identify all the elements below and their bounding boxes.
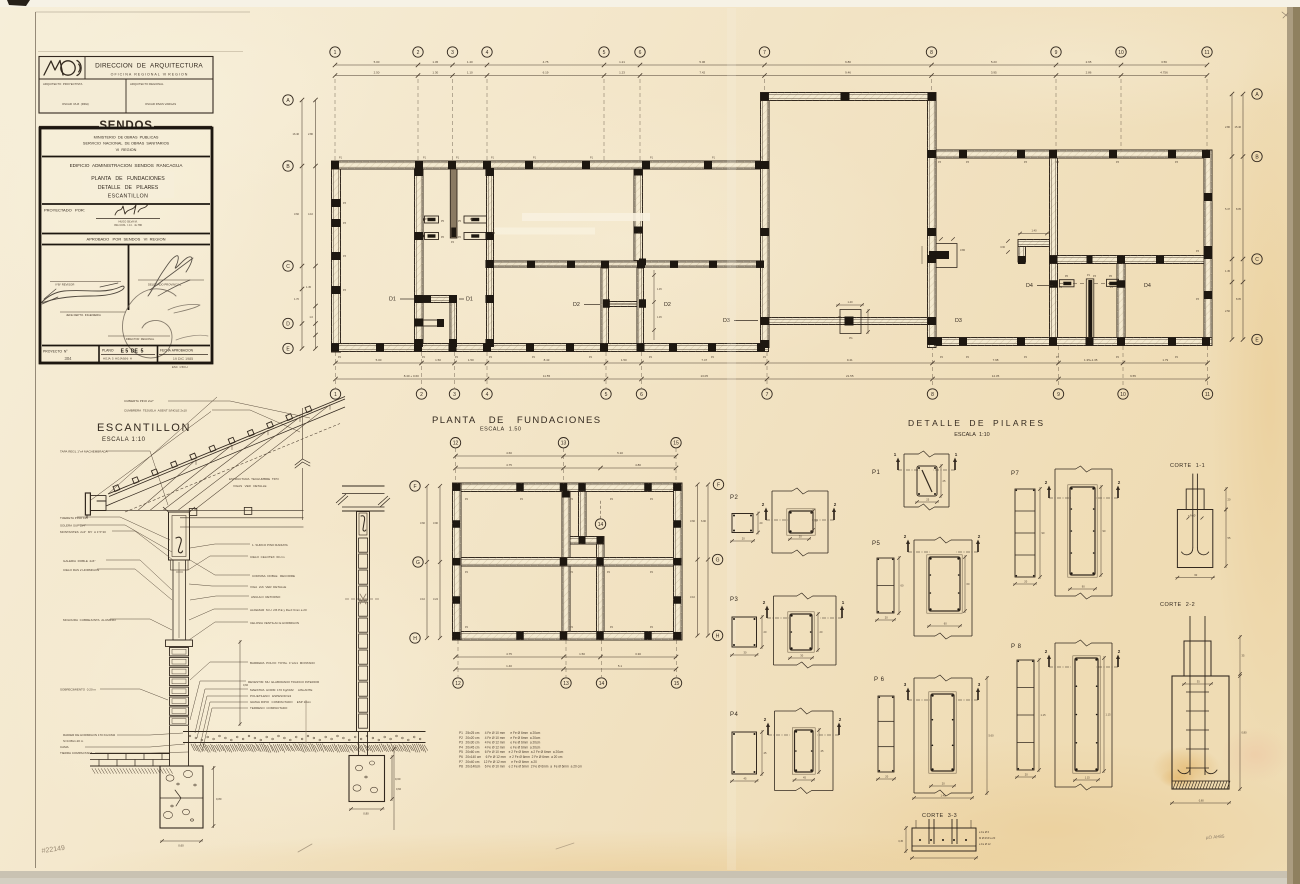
svg-text:P 8: P 8 [1011,644,1022,650]
svg-text:3.60: 3.60 [690,519,696,523]
svg-text:4.75: 4.75 [543,60,549,64]
svg-text:60: 60 [1193,573,1198,577]
svg-text:VI REGION: VI REGION [116,148,137,152]
svg-text:3.90: 3.90 [433,521,439,525]
svg-text:CUMBRERA TEJUELA ASENT S/NGL: CUMBRERA TEJUELA ASENT S/NGLE 2x10 [124,409,187,413]
svg-text:RADIER DE HORMIGON 170 KG/CM2: RADIER DE HORMIGON 170 KG/CM2 [63,733,116,737]
svg-text:1.15: 1.15 [1041,713,1047,717]
svg-text:14: 14 [598,522,604,528]
svg-text:C: C [1255,257,1259,263]
svg-text:8.43: 8.43 [544,358,550,362]
svg-text:6.90: 6.90 [701,519,707,523]
svg-text:1.45: 1.45 [657,316,662,319]
svg-text:S=0.08x1.20 m: S=0.08x1.20 m [63,739,84,743]
svg-text:1.40: 1.40 [847,300,853,304]
svg-text:13: 13 [563,681,569,687]
svg-text:20: 20 [797,535,802,539]
svg-text:ESCANTILLON: ESCANTILLON [97,422,191,434]
svg-text:VIGAS VER DETALLE: VIGAS VER DETALLE [233,484,266,488]
svg-text:8.40 + 0.60: 8.40 + 0.60 [404,374,419,378]
svg-text:6.80: 6.80 [845,60,851,64]
svg-text:20: 20 [884,775,889,779]
svg-text:15.46: 15.46 [1235,125,1242,129]
svg-text:0,60: 0,60 [396,787,402,791]
svg-text:20: 20 [883,616,888,620]
svg-text:TIJERETA PINO 1x5: TIJERETA PINO 1x5 [60,516,88,520]
svg-text:3.60: 3.60 [294,212,300,216]
svg-text:JEFE DEPTO. INGENIERIA: JEFE DEPTO. INGENIERIA [66,313,101,317]
svg-text:POLIETILENO ESPESOR E3: POLIETILENO ESPESOR E3 [250,694,292,698]
svg-text:H: H [413,636,417,642]
svg-text:9.46: 9.46 [845,71,851,75]
svg-text:4.10: 4.10 [308,212,314,216]
svg-text:F: F [413,484,416,490]
svg-text:P1: P1 [849,336,853,340]
svg-text:25: 25 [925,498,930,502]
svg-text:4.60: 4.60 [506,451,512,455]
svg-text:BARRERA POLVO TOTAL 1"x2x1: BARRERA POLVO TOTAL 1"x2x1 MONTADO [250,661,316,665]
svg-text:9.41: 9.41 [847,358,853,362]
svg-text:1.40: 1.40 [1031,229,1037,233]
svg-text:VIGA 2x6 VER DETALLE: VIGA 2x6 VER DETALLE [250,585,286,589]
svg-text:ESCANTILLON: ESCANTILLON [108,194,148,200]
svg-text:H: H [716,633,720,639]
svg-text:P3 20x30 cm 4 Fe Ø 12 m: P3 20x30 cm 4 Fe Ø 12 mm e Fe Ø 6mm a 20… [459,741,541,745]
svg-text:P2 20x20 cm 4 Fe Ø 10 m: P2 20x20 cm 4 Fe Ø 10 mm e Fe Ø 6mm a 20… [459,736,541,740]
svg-text:8.05: 8.05 [1236,207,1242,211]
svg-text:P4 20x45 cm 4 Fe Ø 12 m: P4 20x45 cm 4 Fe Ø 12 mm e Fe Ø 6mm a 20… [459,745,541,749]
svg-text:CUBIERTA PINO 2x2": CUBIERTA PINO 2x2" [124,399,154,403]
svg-text:1.21: 1.21 [619,60,625,64]
svg-text:ESTRUCTURA TECHUMBRE TIPO: ESTRUCTURA TECHUMBRE TIPO [229,477,280,481]
svg-text:1.45: 1.45 [432,60,438,64]
svg-text:CORNISA DOBLE RECORRE: CORNISA DOBLE RECORRE [252,574,295,578]
svg-text:D1: D1 [389,297,396,303]
svg-text:2: 2 [420,392,423,398]
svg-text:3.24: 3.24 [433,597,439,601]
svg-text:5.23: 5.23 [991,60,997,64]
svg-text:D2: D2 [573,302,580,308]
svg-text:P7 20x40 cm 12 Fe Ø 12 m: P7 20x40 cm 12 Fe Ø 12 mm e Fe Ø 6mm a 2… [459,760,537,764]
svg-text:20: 20 [940,782,945,786]
svg-text:SOBRECIMIENTO 0.20 m: SOBRECIMIENTO 0.20 m [60,688,96,692]
svg-text:4: 4 [486,50,489,56]
svg-text:2.50: 2.50 [374,71,380,75]
svg-text:1.50: 1.50 [468,358,474,362]
svg-text:1.70: 1.70 [294,297,300,301]
svg-text:15: 15 [673,441,679,447]
svg-text:3.30: 3.30 [635,652,641,656]
svg-text:GRAVA RIPIO COMPACTADO E: GRAVA RIPIO COMPACTADO ESP 10cm [250,700,311,704]
svg-text:15: 15 [674,681,680,687]
svg-text:11: 11 [1205,392,1210,398]
svg-text:7: 7 [766,392,769,398]
svg-text:21.55: 21.55 [846,374,854,378]
svg-text:3.80: 3.80 [960,248,966,252]
svg-text:6: 6 [639,50,642,56]
svg-text:2.65: 2.65 [1086,60,1092,64]
svg-text:12: 12 [455,681,461,687]
svg-text:0,80: 0,80 [363,812,369,816]
svg-text:1.15: 1.15 [1083,776,1090,780]
svg-text:PROYECTO N°: PROYECTO N° [43,350,68,354]
svg-text:14.35: 14.35 [992,374,1000,378]
svg-text:30: 30 [742,651,747,655]
svg-text:P1: P1 [872,470,881,476]
svg-text:P4: P4 [730,712,739,718]
svg-text:e Fe Ø 6: e Fe Ø 6 [979,830,990,834]
svg-text:SERVICIO NACIONAL DE OBRAS: SERVICIO NACIONAL DE OBRAS SANITARIOS [83,142,170,146]
svg-text:30: 30 [799,654,804,658]
svg-text:5.10: 5.10 [617,451,623,455]
svg-text:13.05: 13.05 [700,374,708,378]
svg-text:3: 3 [451,50,454,56]
svg-text:1.45: 1.45 [306,285,312,289]
svg-text:P5 20x60 cm 6 Fe Ø 10 m: P5 20x60 cm 6 Fe Ø 10 mm e 2 Fe Ø 6mm a … [459,750,564,754]
svg-text:90: 90 [1080,585,1085,589]
svg-text:REVESTIM MU ELABORADO TRAFIC: REVESTIM MU ELABORADO TRAFICO INTERIOR [248,680,320,684]
svg-text:4.75: 4.75 [506,652,512,656]
svg-text:1.50: 1.50 [579,652,585,656]
svg-text:D1: D1 [466,297,473,303]
svg-text:1.40: 1.40 [940,794,946,798]
svg-text:0,60: 0,60 [243,683,249,687]
svg-text:APROBADO POR SENDOS VI R: APROBADO POR SENDOS VI REGION [87,237,166,242]
svg-text:5: 5 [603,50,606,56]
svg-text:45: 45 [802,776,807,780]
svg-text:P8 20x140cm 6 Fe Ø 10 mm: P8 20x140cm 6 Fe Ø 10 mm e 2 Fe Ø 6mm 2 … [459,765,582,769]
svg-text:35: 35 [1195,680,1200,684]
svg-text:5.1: 5.1 [618,664,623,668]
svg-text:ESCALA 1.50: ESCALA 1.50 [480,427,521,433]
svg-text:3.56: 3.56 [1161,60,1167,64]
svg-text:3: 3 [453,392,456,398]
svg-text:ARQUITECTO PROYECTISTA: ARQUITECTO PROYECTISTA [43,82,83,86]
svg-text:TAPA REGL 1"x4 MACHEMBRADA: TAPA REGL 1"x4 MACHEMBRADA [60,450,108,454]
svg-text:TIERRA COMPACTADA: TIERRA COMPACTADA [60,751,93,755]
svg-text:2: 2 [417,50,420,56]
svg-text:CIELO RAS 2 HORMIGON: CIELO RAS 2 HORMIGON [63,568,99,572]
svg-text:OSCAR RIVAS VARGAS: OSCAR RIVAS VARGAS [145,102,176,106]
svg-text:P5: P5 [872,541,881,547]
svg-text:D4: D4 [1144,283,1151,289]
svg-text:PLANTA DE FUNDACIONES: PLANTA DE FUNDACIONES [432,415,601,426]
svg-text:1.30: 1.30 [432,71,438,75]
svg-text:DIRECCION DE ARQUITECTURA: DIRECCION DE ARQUITECTURA [95,63,203,70]
svg-text:E 5 DE 5: E 5 DE 5 [121,349,144,355]
svg-text:1.0: 1.0 [309,315,313,319]
svg-text:3.10: 3.10 [690,595,696,599]
svg-text:C: C [286,264,290,270]
svg-text:P3: P3 [730,597,739,603]
svg-text:4.75: 4.75 [506,463,512,467]
svg-text:CORTE 3-3: CORTE 3-3 [922,813,957,819]
svg-text:1.45: 1.45 [1225,269,1231,273]
svg-text:1: 1 [334,50,337,56]
svg-text:0,60: 0,60 [1197,799,1204,803]
svg-text:1: 1 [334,392,337,398]
svg-text:ESC 1:50 H: ESC 1:50 H [172,365,188,369]
svg-text:3.60: 3.60 [420,521,426,525]
svg-text:8: 8 [931,392,934,398]
svg-text:12: 12 [453,441,459,447]
svg-text:7.42: 7.42 [699,71,705,75]
svg-text:PROYECTADO POR:: PROYECTADO POR: [44,208,85,213]
svg-text:HUGO SILVA M.: HUGO SILVA M. [118,220,137,224]
svg-text:16.46: 16.46 [293,132,300,136]
svg-text:O F I C I N A R E G I O N A: O F I C I N A R E G I O N A L VI R E G I… [111,73,188,77]
svg-text:F: F [717,482,720,488]
svg-text:1.45: 1.45 [657,288,662,291]
svg-text:CORTE 1-1: CORTE 1-1 [1170,463,1205,469]
svg-text:5.00: 5.00 [376,358,382,362]
svg-text:6: 6 [640,392,643,398]
svg-text:0.60: 0.60 [1000,246,1005,249]
svg-text:D E T A L L E D E P I L: D E T A L L E D E P I L A R E S [908,418,1043,428]
svg-text:14: 14 [599,681,605,687]
svg-text:5.06: 5.06 [699,60,705,64]
svg-text:TERRENO COMPACTADO: TERRENO COMPACTADO [250,706,288,710]
svg-text:ANGULO RETORNO: ANGULO RETORNO [251,595,281,599]
svg-text:CELOSIA VENTILAC E HORMIGON: CELOSIA VENTILAC E HORMIGON [250,621,299,625]
svg-text:DIRECTOR REGIONAL: DIRECTOR REGIONAL [126,337,155,341]
svg-text:OSCAR RUZ (RRH): OSCAR RUZ (RRH) [62,102,89,106]
svg-text:G: G [716,557,720,563]
svg-text:10: 10 [1118,50,1124,56]
svg-text:SENDOS: SENDOS [99,120,152,132]
svg-text:PLANO: PLANO [102,349,114,353]
svg-text:ARQUITECTO REGIONAL: ARQUITECTO REGIONAL [130,82,164,86]
svg-text:9.55: 9.55 [1130,374,1136,378]
svg-text:EDIFICIO ADMINISTRACION SEND: EDIFICIO ADMINISTRACION SENDOS RANCAGUA [70,163,184,168]
svg-text:4.80: 4.80 [635,463,641,467]
svg-text:3.10: 3.10 [420,597,426,601]
svg-text:5.47: 5.47 [1225,207,1231,211]
svg-text:D: D [286,321,290,327]
svg-text:45: 45 [742,777,747,781]
svg-text:5: 5 [605,392,608,398]
svg-text:ESCALA 1:10: ESCALA 1:10 [102,437,146,443]
svg-text:60: 60 [942,622,947,626]
svg-text:e Fe Ø 12: e Fe Ø 12 [979,842,991,846]
svg-text:MOLDURA CUBREJUNTA ALUMINIO: MOLDURA CUBREJUNTA ALUMINIO [63,618,116,622]
svg-text:MAESTRA HORM 170 Kg/CM2: MAESTRA HORM 170 Kg/CM2 AISLANTE [250,688,312,692]
svg-text:20: 20 [1023,773,1028,777]
svg-text:1.15: 1.15 [1106,713,1112,717]
svg-text:13: 13 [561,441,567,447]
svg-text:1.10: 1.10 [467,71,473,75]
svg-text:ALFEIZAR M.U. 2/6 P.E y Ra-F: ALFEIZAR M.U. 2/6 P.E y Ra-F 6mm a 20 [250,608,307,612]
svg-text:11: 11 [1204,50,1209,56]
svg-text:D2: D2 [664,302,671,308]
svg-text:2.50: 2.50 [1225,309,1231,313]
svg-text:9: 9 [1055,50,1058,56]
svg-text:D4: D4 [1026,283,1033,289]
svg-text:2.80: 2.80 [1225,125,1231,129]
svg-text:2.80: 2.80 [308,132,314,136]
svg-text:HOJA: 5 HOJAS(H) H: HOJA: 5 HOJAS(H) H [103,357,132,361]
svg-text:P6 20x140 cm 6 Fe Ø 12 m: P6 20x140 cm 6 Fe Ø 12 mm e 2 Fe Ø 6mm 2… [459,755,563,759]
svg-text:5.00: 5.00 [374,60,380,64]
svg-text:1.50: 1.50 [435,358,441,362]
svg-text:4: 4 [486,392,489,398]
svg-text:1.50: 1.50 [621,358,627,362]
svg-text:20: 20 [1023,580,1028,584]
svg-text:4.756: 4.756 [1160,71,1168,75]
svg-text:ING CIVIL I.C.I. 4x.780: ING CIVIL I.C.I. 4x.780 [114,223,143,227]
svg-text:PLANTA DE FUNDACIONES: PLANTA DE FUNDACIONES [91,176,165,182]
svg-text:1.79: 1.79 [1162,358,1168,362]
svg-text:D3: D3 [955,318,962,324]
svg-text:1.23: 1.23 [619,71,625,75]
svg-text:1.40: 1.40 [467,60,473,64]
svg-text:7.98: 7.98 [993,358,999,362]
svg-text:304: 304 [65,356,73,361]
svg-text:7.47: 7.47 [701,358,707,362]
svg-text:P7: P7 [1011,471,1020,477]
svg-text:5.60: 5.60 [989,734,995,738]
svg-text:1. SURCO PINO RADIATA: 1. SURCO PINO RADIATA [252,543,288,547]
svg-text:0,60: 0,60 [395,777,401,781]
svg-text:DETALLE DE PILARES: DETALLE DE PILARES [98,185,159,191]
svg-text:10: 10 [1120,392,1126,398]
svg-text:19 DIC 1985: 19 DIC 1985 [173,357,193,361]
svg-text:V°B° REVISOR: V°B° REVISOR [55,283,74,287]
svg-text:M Ø Ø Ø a 20: M Ø Ø Ø a 20 [979,836,996,840]
svg-text:1.40: 1.40 [506,664,512,668]
svg-text:0,80: 0,80 [216,797,222,801]
svg-text:G: G [416,560,420,566]
svg-text:0,80: 0,80 [1242,731,1248,735]
svg-text:P2: P2 [730,495,739,501]
svg-text:0,45: 0,45 [898,840,903,843]
svg-text:7: 7 [763,50,766,56]
svg-text:P 6: P 6 [874,677,885,683]
svg-text:e Fe Ø: e Fe Ø [1188,515,1195,518]
svg-text:8: 8 [930,50,933,56]
svg-text:SOLERA SUP 2x4": SOLERA SUP 2x4" [60,524,86,528]
svg-text:9: 9 [1057,392,1060,398]
svg-text:1.35+1.35: 1.35+1.35 [1084,358,1098,362]
svg-text:0,60: 0,60 [178,844,184,848]
svg-text:CAMA: CAMA [60,745,69,749]
svg-text:P1 25x25 cm 4 Fe Ø 10 m: P1 25x25 cm 4 Fe Ø 10 mm e Fe Ø 6mm a 20… [459,731,541,735]
svg-text:2.86: 2.86 [1086,71,1092,75]
svg-text:GALERIA ROBLE 2x6": GALERIA ROBLE 2x6" [63,559,95,563]
svg-text:FECHA APROBACION: FECHA APROBACION [160,349,194,353]
svg-text:6.19: 6.19 [543,71,549,75]
svg-text:MONTANTES 2x4" MY A 1"P 30: MONTANTES 2x4" MY A 1"P 30 [60,530,106,534]
svg-text:CORTE 2-2: CORTE 2-2 [1160,602,1195,608]
svg-text:20: 20 [740,537,745,541]
svg-text:MINISTERIO DE OBRAS PUBLICAS: MINISTERIO DE OBRAS PUBLICAS [94,136,159,140]
svg-text:CIELO CELOTEX 60 cm: CIELO CELOTEX 60 cm [250,555,285,559]
svg-text:3.95: 3.95 [991,71,997,75]
svg-text:11.55: 11.55 [543,374,551,378]
svg-text:ESCALA 1:10: ESCALA 1:10 [954,432,989,438]
svg-text:8.05: 8.05 [1236,297,1242,301]
